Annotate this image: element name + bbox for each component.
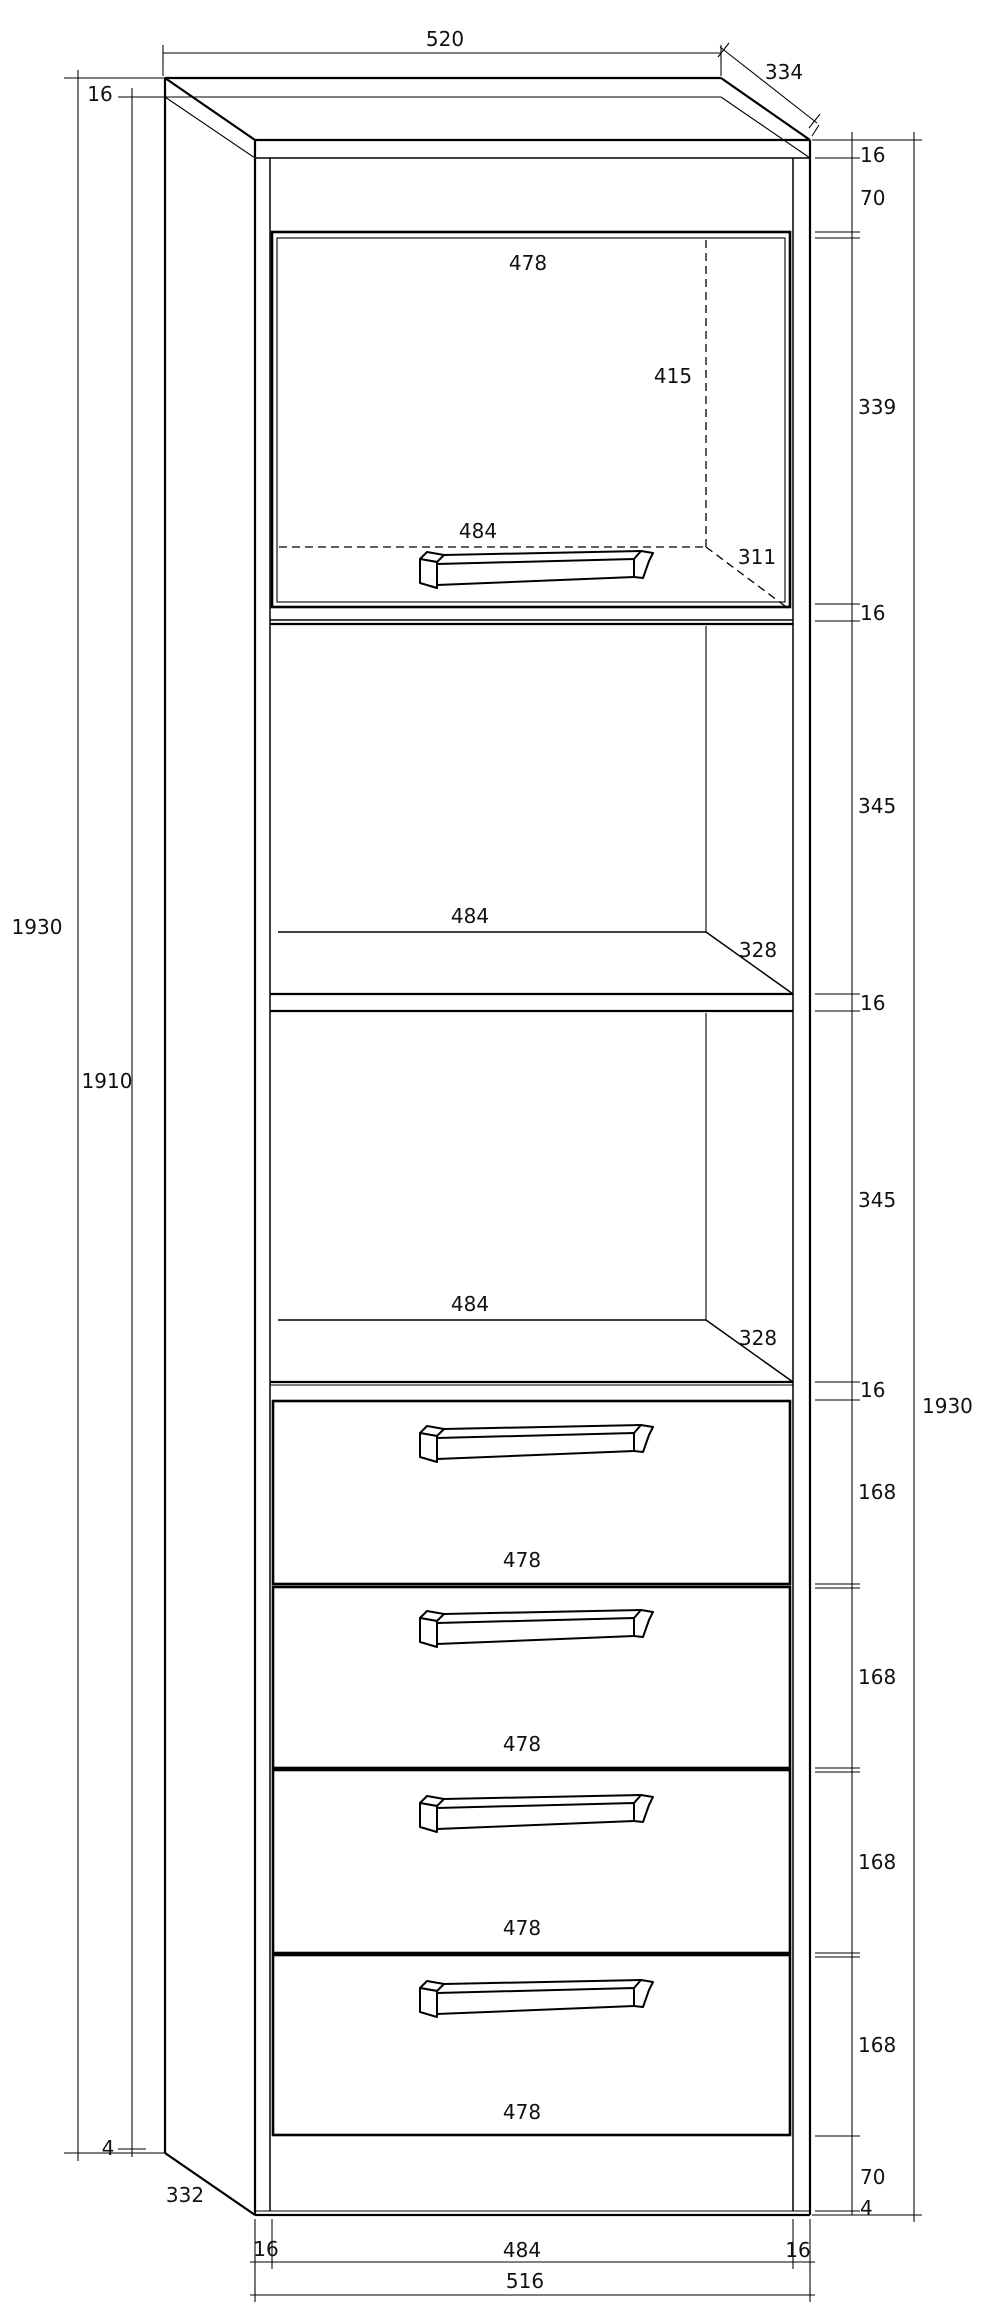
dim-shelf1-depth: 328 bbox=[739, 938, 777, 962]
cabinet-carcass bbox=[165, 78, 810, 2215]
dim-right-drawer-4: 168 bbox=[858, 2033, 896, 2057]
dim-right-divider-2: 16 bbox=[860, 991, 885, 1015]
door-handle bbox=[420, 551, 653, 588]
dim-right-shelf-opening-1: 345 bbox=[858, 794, 896, 818]
dim-right-bottom-gap: 4 bbox=[860, 2196, 873, 2220]
dim-left-bottom-gap: 4 bbox=[102, 2136, 115, 2160]
dim-right-plinth: 70 bbox=[860, 2165, 885, 2189]
dim-right-top-thickness: 16 bbox=[860, 143, 885, 167]
dim-left-top-thickness: 16 bbox=[87, 82, 112, 106]
dim-right-overall-height: 1930 bbox=[922, 1394, 973, 1418]
dim-top-depth: 334 bbox=[765, 60, 803, 84]
dim-right-divider-1: 16 bbox=[860, 601, 885, 625]
dim-drawer4-width: 478 bbox=[503, 2100, 541, 2124]
dim-side-depth: 332 bbox=[166, 2183, 204, 2207]
dimension-lines-top bbox=[163, 43, 820, 136]
drawer-4-handle bbox=[420, 1980, 653, 2017]
dim-door-width: 478 bbox=[509, 251, 547, 275]
technical-drawing-page: 520 334 16 1930 1910 4 332 478 415 484 3… bbox=[0, 0, 987, 2317]
base-bottom bbox=[165, 2153, 810, 2215]
cabinet-diagram: 520 334 16 1930 1910 4 332 478 415 484 3… bbox=[0, 0, 987, 2317]
shelf-compartment-2 bbox=[270, 1013, 793, 1385]
dim-bottom-carcass-width: 516 bbox=[506, 2269, 544, 2293]
shelf-compartment-1 bbox=[270, 626, 793, 1011]
dim-bottom-right-thickness: 16 bbox=[785, 2238, 810, 2262]
top-panel bbox=[165, 78, 810, 158]
dim-right-shelf-opening-2: 345 bbox=[858, 1188, 896, 1212]
dim-drawer2-width: 478 bbox=[503, 1732, 541, 1756]
dim-door-inner-height: 415 bbox=[654, 364, 692, 388]
dim-bottom-left-thickness: 16 bbox=[253, 2237, 278, 2261]
dim-bottom-inner-width: 484 bbox=[503, 2238, 541, 2262]
dimension-lines-left bbox=[64, 70, 168, 2161]
dim-door-inner-depth: 311 bbox=[738, 545, 776, 569]
dim-left-overall-height: 1930 bbox=[12, 915, 63, 939]
dim-right-divider-3: 16 bbox=[860, 1378, 885, 1402]
dim-right-top-offset: 70 bbox=[860, 186, 885, 210]
dim-right-drawer-1: 168 bbox=[858, 1480, 896, 1504]
dim-shelf2-depth: 328 bbox=[739, 1326, 777, 1350]
drawer-2-handle bbox=[420, 1610, 653, 1647]
dim-drawer1-width: 478 bbox=[503, 1548, 541, 1572]
dim-left-inner-height: 1910 bbox=[82, 1069, 133, 1093]
dim-right-door-opening: 339 bbox=[858, 395, 896, 419]
side-panels bbox=[165, 78, 810, 2215]
door-panel bbox=[272, 232, 790, 607]
dim-right-drawer-3: 168 bbox=[858, 1850, 896, 1874]
dim-drawer3-width: 478 bbox=[503, 1916, 541, 1940]
drawer-1-handle bbox=[420, 1425, 653, 1462]
dim-door-inner-width: 484 bbox=[459, 519, 497, 543]
dim-shelf2-width: 484 bbox=[451, 1292, 489, 1316]
dim-right-drawer-2: 168 bbox=[858, 1665, 896, 1689]
dimension-lines-right bbox=[812, 132, 922, 2222]
divider-under-door bbox=[270, 620, 793, 624]
dim-top-width: 520 bbox=[426, 27, 464, 51]
drawer-3-handle bbox=[420, 1795, 653, 1832]
dim-shelf1-width: 484 bbox=[451, 904, 489, 928]
